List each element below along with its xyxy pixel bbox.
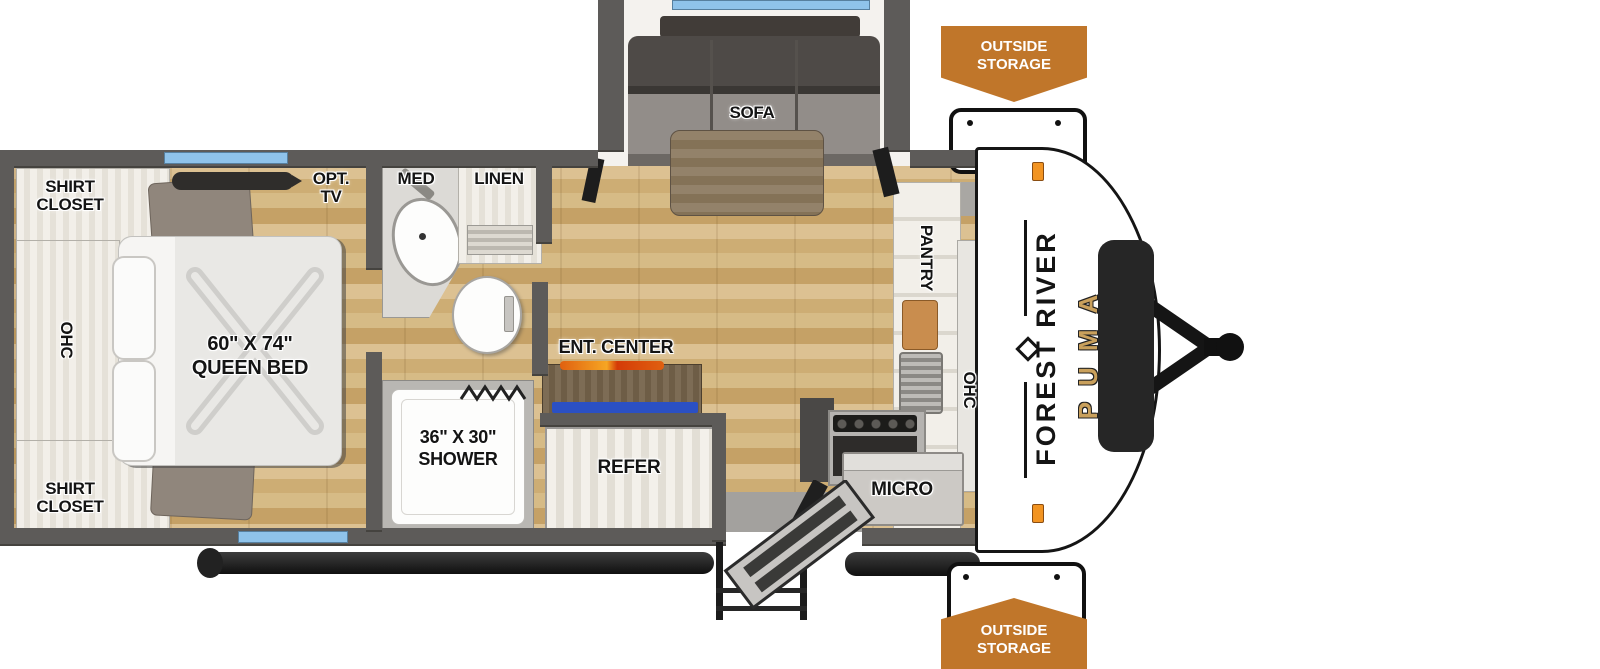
wall-top-left — [8, 150, 598, 168]
clearance-light-top — [1032, 162, 1044, 181]
sofa-label: SOFA — [702, 104, 802, 122]
tv-bar — [172, 172, 294, 190]
wall-bath-left-upper — [366, 152, 382, 270]
entry-steps — [700, 480, 890, 640]
media-strip — [552, 402, 698, 413]
sofa-valance — [660, 16, 860, 38]
med-label: MED — [386, 170, 446, 188]
wall-toilet-right — [532, 282, 548, 376]
refer-label: REFER — [568, 458, 690, 478]
bedroom-window-top — [164, 152, 288, 164]
ent-center-label: ENT. CENTER — [545, 338, 687, 357]
shower-size-label: 36" X 30" — [392, 428, 524, 447]
ohc-bedroom-label: OHC — [57, 310, 75, 370]
shower-label: SHOWER — [392, 450, 524, 469]
ohc-kitchen-label: OHC — [960, 360, 978, 420]
kitchen-sink-cover — [899, 352, 943, 414]
refer — [545, 427, 717, 533]
floorplan-canvas: SOFA SHIRT CLOSET OHC SHIRT CLOSET 60" X… — [0, 0, 1600, 669]
equipment-box — [1098, 240, 1154, 452]
outside-storage-badge-top: OUTSIDE STORAGE — [941, 26, 1087, 102]
opt-tv-label: OPT. TV — [300, 170, 362, 206]
brand-rule-bottom — [1024, 382, 1027, 478]
wall-linen-right — [536, 152, 552, 244]
bed-size-label: 60" X 74" — [160, 334, 340, 355]
micro-label: MICRO — [850, 480, 954, 500]
bumper-endcap — [197, 548, 223, 578]
fireplace-flame — [560, 361, 664, 370]
bedroom-window-bottom — [238, 531, 348, 543]
dinette-table — [670, 130, 824, 216]
linen-label: LINEN — [460, 170, 538, 188]
wall-bath-left-lower — [366, 352, 382, 532]
outside-storage-badge-top-label: OUTSIDE STORAGE — [941, 26, 1087, 74]
brand-rule-top — [1024, 220, 1027, 316]
brand-text: FOREST RIVER — [1032, 198, 1064, 498]
bed-type-label: QUEEN BED — [160, 358, 340, 379]
shirt-closet-top-label: SHIRT CLOSET — [20, 178, 120, 214]
wall-under-entcenter — [540, 413, 726, 427]
shirt-closet-bottom-label: SHIRT CLOSET — [20, 480, 120, 516]
wall-left — [0, 150, 14, 546]
bed-pillow-2 — [112, 360, 156, 462]
showerhead-icon — [459, 383, 529, 403]
clearance-light-bottom — [1032, 504, 1044, 523]
bumper-left — [206, 552, 714, 574]
pantry-label: PANTRY — [915, 185, 935, 331]
slideout-window — [672, 0, 870, 10]
bed-pillow-1 — [112, 256, 156, 360]
slideout-wall-left — [598, 0, 624, 152]
slideout-wall-right — [884, 0, 910, 152]
toilet — [452, 276, 522, 354]
